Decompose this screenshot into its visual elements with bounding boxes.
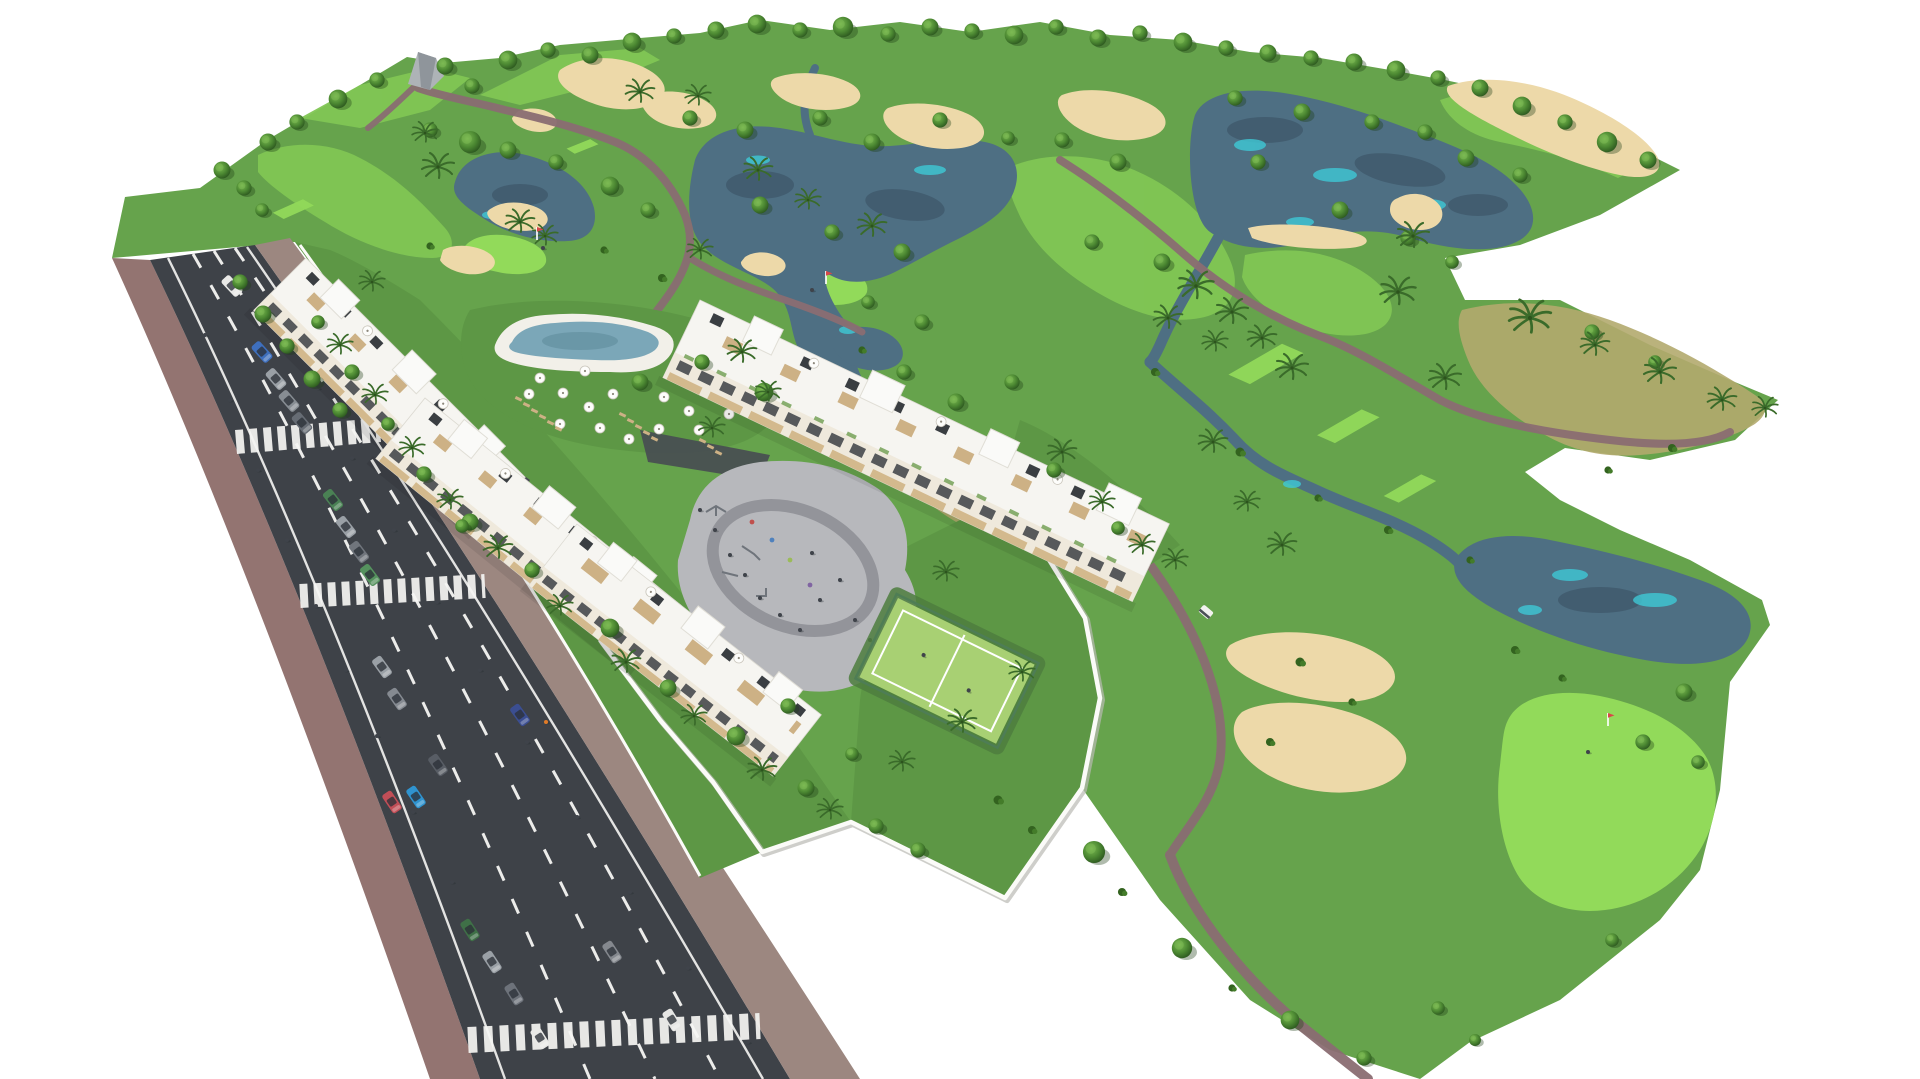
reflection (1227, 117, 1303, 143)
parasol (624, 434, 634, 444)
parasol (580, 366, 590, 376)
teal-patch (1313, 168, 1357, 182)
play-item (750, 520, 755, 525)
teal-patch (1552, 569, 1588, 581)
aerial-render (0, 0, 1920, 1079)
play-item (788, 558, 793, 563)
teal-patch (1518, 605, 1542, 615)
tree (1083, 841, 1110, 865)
tree (1172, 938, 1197, 960)
parasol (584, 402, 594, 412)
parasol (535, 373, 545, 383)
play-item (770, 538, 775, 543)
reflection (492, 184, 548, 206)
teal-patch (914, 165, 946, 175)
parasol (608, 389, 618, 399)
render-canvas (0, 0, 1920, 1079)
parasol (659, 392, 669, 402)
parasol (524, 389, 534, 399)
bush (1118, 888, 1127, 896)
bush (1604, 466, 1612, 473)
parasol (595, 423, 605, 433)
parasol (654, 424, 664, 434)
parasol (684, 406, 694, 416)
pool-deep-end (542, 332, 618, 350)
teal-patch (1283, 480, 1301, 488)
reflection (1558, 587, 1642, 613)
reflection (1448, 194, 1508, 216)
teal-patch (1234, 139, 1266, 151)
parasol (558, 388, 568, 398)
teal-patch (1633, 593, 1677, 607)
teal-patch (746, 156, 770, 165)
play-item (808, 583, 813, 588)
bush (1228, 984, 1236, 991)
